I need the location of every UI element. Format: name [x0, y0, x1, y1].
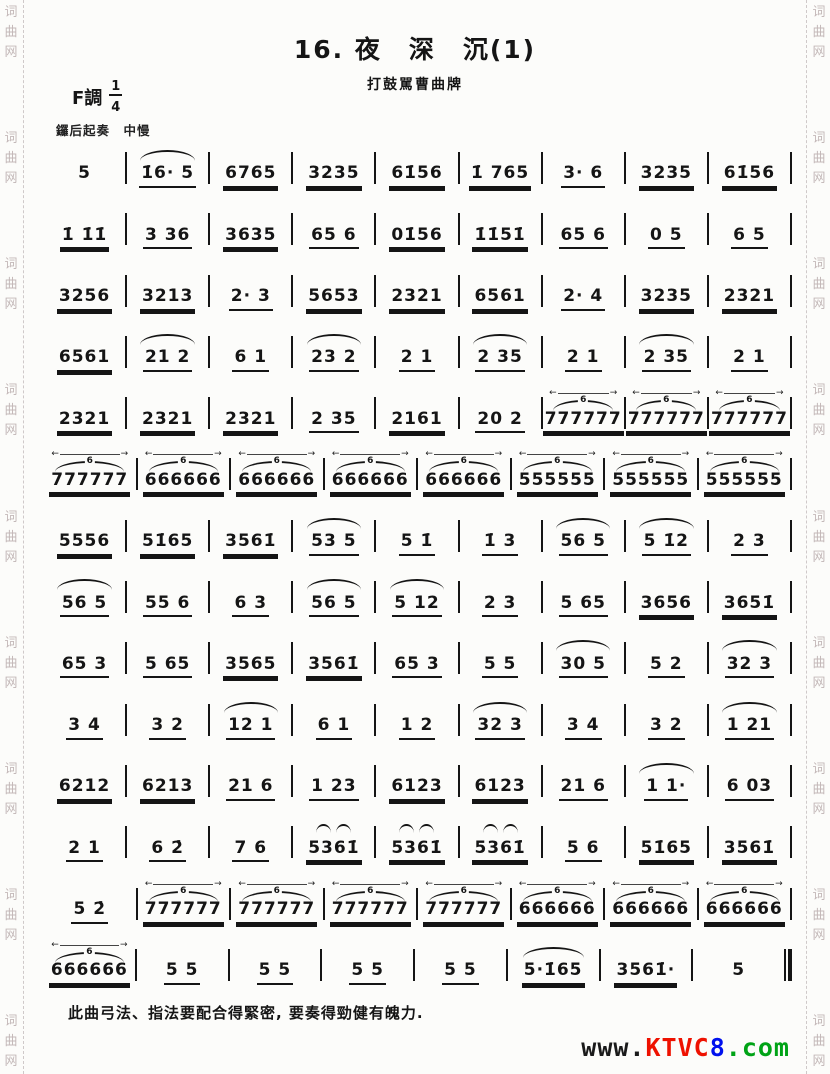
watermark-char: 曲 [4, 531, 17, 544]
score-row: 6212621321 61 236123612321 61 1·6 03 [44, 755, 792, 801]
sextuplet-tremolo-icon: ←→6 [332, 450, 409, 472]
slur-icon [134, 144, 202, 161]
watermark-char: 网 [4, 424, 17, 437]
measure-cell: ←→6777777 [709, 387, 790, 433]
measure-cell: ←→6555555 [699, 448, 791, 494]
note-group: 56 5 [60, 594, 109, 618]
note-group: 6213 [140, 777, 195, 801]
note-group: 5361̇ [306, 839, 361, 863]
note-group: 555555 [517, 471, 598, 495]
measure-cell: ←→6777777 [231, 878, 323, 924]
note-group: 1̇1̇51̇ [472, 226, 527, 250]
score-row: 325632132· 35653232165612· 432352321 [44, 265, 792, 311]
slur-icon [50, 573, 118, 590]
measure-cell: 2161 [376, 387, 457, 433]
note-group: 5 5 [164, 961, 201, 985]
measure-cell: 5 65 [127, 632, 208, 678]
note-group: 21 6 [559, 777, 608, 801]
measure-cell: 0 5 [626, 203, 707, 249]
site-watermark-part: .com [726, 1033, 790, 1062]
measure-cell: 3 36 [127, 203, 208, 249]
measure-cell: 5361̇ [293, 816, 374, 862]
measure-cell: 3256 [44, 265, 125, 311]
measure-cell: 3 4 [543, 694, 624, 740]
measure-cell: 3561̇· [601, 939, 692, 985]
watermark-char: 网 [812, 803, 825, 816]
score-row: 656121 26 123 22 12 352 12 352 1 [44, 326, 792, 372]
note-group: 6123 [389, 777, 444, 801]
slur-icon [549, 634, 617, 651]
note-group: 3651̇ [722, 594, 777, 618]
measure-cell: ←→6555555 [605, 448, 697, 494]
note-group: 5 1̇2 [642, 532, 691, 556]
barline [790, 275, 792, 307]
measure-cell: ←→6666666 [231, 448, 323, 494]
measure-cell: 2 1 [709, 326, 790, 372]
sextuplet-tremolo-icon: ←→6 [145, 880, 222, 902]
watermark-char: 词 [4, 6, 17, 19]
note-group: 2 1 [399, 348, 436, 372]
tempo-marking: 鑼后起奏 中慢 [56, 120, 151, 139]
measure-cell: 5·1̇65 [508, 939, 599, 985]
sextuplet-tremolo-icon: ←→6 [519, 880, 596, 902]
note-group: 3 2 [149, 716, 186, 740]
sextuplet-tremolo-icon: ←→6 [238, 880, 315, 902]
watermark-char: 曲 [812, 152, 825, 165]
note-group: 5 65 [559, 594, 608, 618]
note-group: 5 5 [257, 961, 294, 985]
note-group: 5653 [306, 287, 361, 311]
note-group: 3 2 [648, 716, 685, 740]
watermark-char: 曲 [4, 1035, 17, 1048]
watermark-char: 曲 [4, 657, 17, 670]
score-row: 555651̇653561̇53 55 1̇1̇ 356 55 1̇22 3 [44, 510, 792, 556]
measure-cell: 6 03 [709, 755, 790, 801]
measure-cell: ←→6777777 [543, 387, 624, 433]
measure-cell: 1̇ 3 [460, 510, 541, 556]
double-arc-icon [466, 818, 534, 833]
note-group: 3 4 [565, 716, 602, 740]
measure-cell: 6561 [44, 326, 125, 372]
edge-watermark-group: 词曲网 [2, 763, 20, 816]
measure-cell: 3651̇ [709, 571, 790, 617]
watermark-char: 词 [812, 1015, 825, 1028]
note-group: 3561̇· [614, 961, 677, 985]
sextuplet-tremolo-icon: ←→6 [612, 880, 689, 902]
watermark-char: 词 [812, 763, 825, 776]
note-group: 56 5 [559, 532, 608, 556]
barline [790, 888, 792, 920]
measure-cell: 2· 4 [543, 265, 624, 311]
sextuplet-tremolo-icon: ←→6 [519, 450, 596, 472]
note-group: 61̇56 [389, 164, 444, 188]
right-edge-watermark: 词曲网词曲网词曲网词曲网词曲网词曲网词曲网词曲网词曲网 [810, 0, 828, 1074]
note-group: 65 3 [392, 655, 441, 679]
barline [790, 213, 792, 245]
measure-cell: 5 5 [137, 939, 228, 985]
measure-cell: 3 2 [127, 694, 208, 740]
watermark-char: 词 [4, 258, 17, 271]
note-group: 61̇56 [722, 164, 777, 188]
measure-cell: 2321 [210, 387, 291, 433]
sextuplet-tremolo-icon: ←→6 [51, 450, 128, 472]
measure-cell: 3235 [626, 265, 707, 311]
measure-cell: 3 4 [44, 694, 125, 740]
note-group: 5 2 [648, 655, 685, 679]
score-row: 51̇6· 56765323561̇561̇ 7653· 6323561̇56 [44, 142, 792, 188]
measure-cell: 01̇56 [376, 203, 457, 249]
note-group: 2 1 [66, 839, 103, 863]
note-group: 1̇ 1̇1̇ [60, 226, 109, 250]
note-group: 23 2 [309, 348, 358, 372]
measure-cell: 3· 6 [543, 142, 624, 188]
measure-cell: 2321 [44, 387, 125, 433]
measure-cell: 5 1̇2 [626, 510, 707, 556]
note-group: 2321 [57, 410, 112, 434]
note-group: 5 65 [143, 655, 192, 679]
note-group: 65 3 [60, 655, 109, 679]
note-group: 777777 [330, 900, 411, 924]
edge-watermark-group: 词曲网 [810, 132, 828, 185]
note-group: 666666 [517, 900, 598, 924]
measure-cell: 5 12 [376, 571, 457, 617]
measure-cell: 12 1 [210, 694, 291, 740]
double-arc-icon [300, 818, 368, 833]
note-group: 2 35 [309, 410, 358, 434]
note-group: 3235 [639, 287, 694, 311]
note-group: 51̇65 [140, 532, 195, 556]
key-label: F調 [72, 84, 102, 110]
measure-cell: 5 6 [543, 816, 624, 862]
note-group: 1̇ 765 [469, 164, 531, 188]
measure-cell: 3213 [127, 265, 208, 311]
note-group: 5556 [57, 532, 112, 556]
measure-cell: 1̇ 765 [460, 142, 541, 188]
watermark-char: 词 [812, 511, 825, 524]
note-group: 2321 [389, 287, 444, 311]
measure-cell: 5 2 [626, 632, 707, 678]
edge-watermark-group: 词曲网 [810, 763, 828, 816]
sextuplet-tremolo-icon: ←→6 [715, 389, 783, 411]
site-watermark-part: KTVC [646, 1033, 710, 1062]
measure-cell: ←→6777777 [626, 387, 707, 433]
note-group: 666666 [143, 471, 224, 495]
watermark-char: 词 [812, 384, 825, 397]
score-row: 5 2̇←→6777777←→6777777←→6777777←→6777777… [44, 878, 792, 924]
edge-watermark-group: 词曲网 [2, 132, 20, 185]
score-row: 2 16 2̇7 65361̇5361̇5361̇5 651̇653561̇ [44, 816, 792, 862]
measure-cell: 2 1 [543, 326, 624, 372]
sextuplet-tremolo-icon: ←→6 [145, 450, 222, 472]
watermark-char: 网 [812, 298, 825, 311]
watermark-char: 曲 [812, 657, 825, 670]
note-group: 5 6 [565, 839, 602, 863]
measure-cell: ←→6666666 [605, 878, 697, 924]
note-group: 666666 [236, 471, 317, 495]
sextuplet-tremolo-icon: ←→6 [612, 450, 689, 472]
note-group: 65 6 [309, 226, 358, 250]
barline [790, 704, 792, 736]
measure-cell: 30 5 [543, 632, 624, 678]
measure-cell: 61̇56 [376, 142, 457, 188]
slur-icon [549, 512, 617, 529]
note-group: 1 23 [309, 777, 358, 801]
watermark-char: 网 [4, 551, 17, 564]
measure-cell: 6 5 [709, 203, 790, 249]
measure-cell: 2 3 [460, 571, 541, 617]
measure-cell: 6 3 [210, 571, 291, 617]
note-group: 55 6 [143, 594, 192, 618]
sextuplet-tremolo-icon: ←→6 [632, 389, 700, 411]
note-group: 5 5 [442, 961, 479, 985]
edge-watermark-group: 词曲网 [2, 258, 20, 311]
measure-cell: 3 2 [626, 694, 707, 740]
note-group: 6212 [57, 777, 112, 801]
measure-cell: 2321 [709, 265, 790, 311]
note-group: 32 3 [725, 655, 774, 679]
note-group: 666666 [423, 471, 504, 495]
edge-watermark-group: 词曲网 [2, 637, 20, 690]
measure-cell: ←→6666666 [325, 448, 417, 494]
measure-cell: 56 5 [44, 571, 125, 617]
site-watermark-part: www. [581, 1033, 645, 1062]
note-group: 5 1̇ [399, 532, 436, 556]
watermark-char: 曲 [812, 278, 825, 291]
measure-cell: 5653 [293, 265, 374, 311]
measure-cell: 5 2̇ [44, 878, 136, 924]
note-group: 3· 6 [561, 164, 605, 188]
measure-cell: 1̇ 1̇1̇ [44, 203, 125, 249]
note-group: 666666 [704, 900, 785, 924]
note-group: 65 6 [559, 226, 608, 250]
performance-note: 此曲弓法、指法要配合得緊密, 要奏得勁健有魄力. [68, 1002, 424, 1023]
measure-cell: 51̇65 [127, 510, 208, 556]
measure-cell: 2· 3 [210, 265, 291, 311]
note-group: 6765 [223, 164, 278, 188]
note-group: 5 [730, 961, 747, 985]
score-row: 56 555 66 356 55 122 35 6536563651̇ [44, 571, 792, 617]
watermark-char: 词 [4, 889, 17, 902]
note-group: 7 6 [232, 839, 269, 863]
score-row: ←→66666665 55 55 55 55·1̇653561̇·5 [44, 939, 792, 985]
barline [790, 397, 792, 429]
watermark-char: 网 [812, 172, 825, 185]
measure-cell: 2 3 [709, 510, 790, 556]
site-watermark: www.KTVC8.com [581, 1033, 790, 1062]
measure-cell: 3656 [626, 571, 707, 617]
measure-cell: ←→6777777 [325, 878, 417, 924]
watermark-char: 网 [812, 677, 825, 690]
note-group: 6 2̇ [149, 839, 186, 863]
edge-watermark-group: 词曲网 [810, 637, 828, 690]
slur-icon [300, 328, 368, 345]
edge-watermark-group: 词曲网 [810, 384, 828, 437]
sextuplet-tremolo-icon: ←→6 [706, 450, 783, 472]
watermark-char: 词 [4, 637, 17, 650]
measure-cell: 65 3 [44, 632, 125, 678]
measure-cell: 21 6 [210, 755, 291, 801]
measure-cell: 65 6 [293, 203, 374, 249]
slur-icon [632, 328, 700, 345]
measure-cell: 5 65 [543, 571, 624, 617]
measure-cell: 1̇6· 5 [127, 142, 208, 188]
note-group: 5 2̇ [71, 900, 108, 924]
note-group: 6 1 [232, 348, 269, 372]
note-group: 2 3 [482, 594, 519, 618]
measure-cell: 21 6 [543, 755, 624, 801]
measure-cell: 2 35 [460, 326, 541, 372]
measure-cell: 7 6 [210, 816, 291, 862]
note-group: 21 6 [226, 777, 275, 801]
measure-cell: 5361̇ [376, 816, 457, 862]
note-group: 2161 [389, 410, 444, 434]
measure-cell: 61̇56 [709, 142, 790, 188]
sheet-music-page: 词曲网词曲网词曲网词曲网词曲网词曲网词曲网词曲网词曲网 词曲网词曲网词曲网词曲网… [0, 0, 830, 1074]
sextuplet-tremolo-icon: ←→6 [332, 880, 409, 902]
measure-cell: ←→6777777 [418, 878, 510, 924]
watermark-char: 曲 [812, 783, 825, 796]
watermark-char: 词 [812, 637, 825, 650]
note-group: 2321 [722, 287, 777, 311]
note-group: 5361̇ [389, 839, 444, 863]
measure-cell: 6 1 [210, 326, 291, 372]
measure-cell: 3561̇ [709, 816, 790, 862]
note-group: 3 4 [66, 716, 103, 740]
measure-cell: 56 5 [543, 510, 624, 556]
note-group: 3235 [639, 164, 694, 188]
note-group: 32 3 [475, 716, 524, 740]
measure-cell: 23 2 [293, 326, 374, 372]
measure-cell: 2 35 [626, 326, 707, 372]
watermark-char: 网 [4, 1055, 17, 1068]
measure-cell: 3635 [210, 203, 291, 249]
note-group: 777777 [423, 900, 504, 924]
note-group: 3235 [306, 164, 361, 188]
note-group: 1 1· [644, 777, 688, 801]
measure-cell: 5 [693, 939, 784, 985]
note-group: 3565 [223, 655, 278, 679]
watermark-char: 网 [4, 298, 17, 311]
watermark-char: 曲 [812, 1035, 825, 1048]
note-group: 777777 [543, 410, 624, 434]
watermark-char: 网 [4, 172, 17, 185]
right-dashed-rule [806, 0, 807, 1074]
measure-cell: 6123 [460, 755, 541, 801]
key-signature: F調 1 4 [72, 80, 123, 114]
site-watermark-part: 8 [710, 1033, 726, 1062]
note-group: 777777 [626, 410, 707, 434]
meter-fraction: 1 4 [108, 80, 123, 114]
measure-cell: 3561̇ [293, 632, 374, 678]
measure-cell: 32 3 [460, 694, 541, 740]
edge-watermark-group: 词曲网 [810, 511, 828, 564]
measure-cell: 1 1· [626, 755, 707, 801]
measure-cell: 5 1̇ [376, 510, 457, 556]
barline [790, 336, 792, 368]
measure-cell: 56 5 [293, 571, 374, 617]
watermark-char: 网 [812, 1055, 825, 1068]
note-group: 6 1 [316, 716, 353, 740]
note-group: 1̇6· 5 [139, 164, 196, 188]
score-row: ←→6777777←→6666666←→6666666←→6666666←→66… [44, 448, 792, 494]
note-group: 5 [76, 164, 93, 188]
note-group: 2· 3 [229, 287, 273, 311]
watermark-char: 词 [4, 763, 17, 776]
edge-watermark-group: 词曲网 [810, 1015, 828, 1068]
measure-cell: 1̇1̇51̇ [460, 203, 541, 249]
measure-cell: 6 2̇ [127, 816, 208, 862]
watermark-char: 网 [4, 677, 17, 690]
measure-cell: 6123 [376, 755, 457, 801]
measure-cell: 32 3 [709, 632, 790, 678]
watermark-char: 曲 [4, 909, 17, 922]
measure-cell: 6561 [460, 265, 541, 311]
sextuplet-tremolo-icon: ←→6 [549, 389, 617, 411]
watermark-char: 曲 [812, 531, 825, 544]
score: 51̇6· 56765323561̇561̇ 7653· 6323561̇561… [44, 142, 792, 1000]
edge-watermark-group: 词曲网 [2, 511, 20, 564]
note-group: 5 5 [482, 655, 519, 679]
note-group: 6561 [57, 348, 112, 372]
measure-cell: 5 [44, 142, 125, 188]
slur-icon [217, 696, 285, 713]
measure-cell: 21 2 [127, 326, 208, 372]
measure-cell: 2321 [127, 387, 208, 433]
note-group: 3561̇ [722, 839, 777, 863]
barline [790, 520, 792, 552]
note-group: 6123 [472, 777, 527, 801]
watermark-char: 曲 [812, 404, 825, 417]
measure-cell: 1 21 [709, 694, 790, 740]
note-group: 2 35 [642, 348, 691, 372]
measure-cell: 51̇65 [626, 816, 707, 862]
note-group: 2 1 [565, 348, 602, 372]
note-group: 2321 [223, 410, 278, 434]
note-group: 0 5 [648, 226, 685, 250]
measure-cell: 5 5 [322, 939, 413, 985]
watermark-char: 词 [812, 132, 825, 145]
note-group: 6 03 [725, 777, 774, 801]
note-group: 2 35 [475, 348, 524, 372]
watermark-char: 词 [4, 132, 17, 145]
measure-cell: 3235 [293, 142, 374, 188]
sextuplet-tremolo-icon: ←→6 [51, 941, 127, 963]
note-group: 3561̇ [306, 655, 361, 679]
note-group: 777777 [49, 471, 130, 495]
watermark-char: 词 [4, 384, 17, 397]
note-group: 666666 [330, 471, 411, 495]
measure-cell: 55 6 [127, 571, 208, 617]
measure-cell: 3561̇ [210, 510, 291, 556]
watermark-char: 网 [4, 929, 17, 942]
note-group: 56 5 [309, 594, 358, 618]
barline [790, 826, 792, 858]
note-group: 2321 [140, 410, 195, 434]
edge-watermark-group: 词曲网 [2, 1015, 20, 1068]
measure-cell: 1 23 [293, 755, 374, 801]
note-group: 6 5 [731, 226, 768, 250]
measure-cell: 53 5 [293, 510, 374, 556]
note-group: 555555 [610, 471, 691, 495]
measure-cell: 1 2 [376, 694, 457, 740]
measure-cell: 5556 [44, 510, 125, 556]
barline [790, 152, 792, 184]
note-group: 777777 [143, 900, 224, 924]
note-group: 5·1̇65 [522, 961, 585, 985]
measure-cell: 3565 [210, 632, 291, 678]
left-dashed-rule [23, 0, 24, 1074]
note-group: 2 3 [731, 532, 768, 556]
